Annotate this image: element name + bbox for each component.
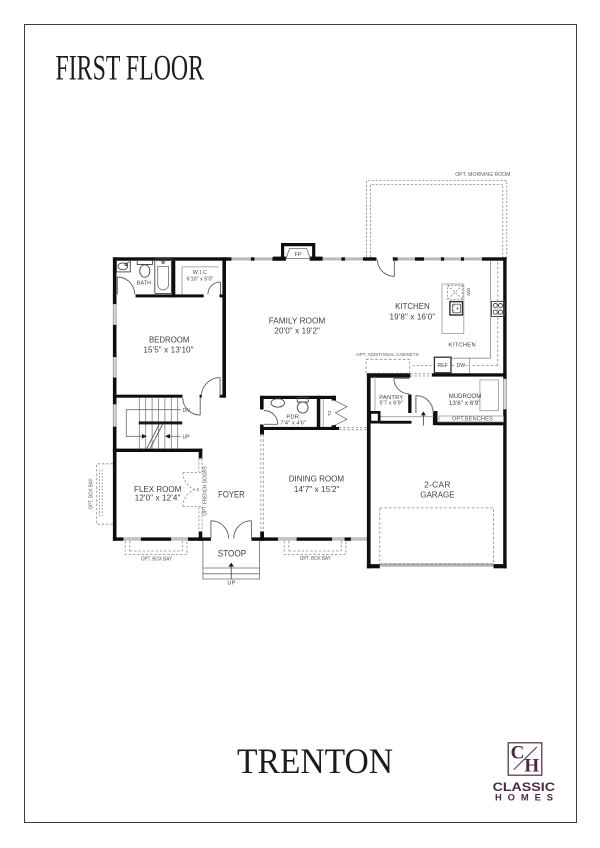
svg-text:5'7 x 6'9": 5'7 x 6'9"	[379, 401, 402, 407]
svg-text:FLEX ROOM: FLEX ROOM	[134, 484, 181, 494]
svg-text:7'4" x 4'6": 7'4" x 4'6"	[281, 421, 307, 427]
svg-text:KITCHEN: KITCHEN	[448, 343, 476, 349]
svg-text:KITCHEN: KITCHEN	[395, 301, 430, 311]
svg-text:15'5" x 13'10": 15'5" x 13'10"	[143, 345, 193, 354]
svg-text:OPT. MORNING ROOM: OPT. MORNING ROOM	[455, 172, 510, 178]
svg-text:14'7" x 15'2": 14'7" x 15'2"	[294, 485, 340, 494]
svg-text:2-CAR: 2-CAR	[424, 480, 451, 490]
svg-text:OPT. BOX BAY: OPT. BOX BAY	[300, 556, 331, 562]
svg-text:6'10" x 5'0": 6'10" x 5'0"	[187, 277, 214, 283]
svg-text:BATH: BATH	[137, 281, 151, 287]
svg-text:CL: CL	[327, 411, 332, 417]
svg-text:UP: UP	[183, 434, 191, 440]
svg-text:DINING ROOM: DINING ROOM	[289, 473, 344, 483]
svg-text:FOYER: FOYER	[218, 490, 245, 500]
svg-text:FP: FP	[295, 252, 302, 258]
svg-text:TRENTON: TRENTON	[237, 741, 393, 781]
svg-text:19'8" x 16'0": 19'8" x 16'0"	[390, 313, 436, 322]
svg-text:BEDROOM: BEDROOM	[149, 335, 190, 345]
svg-text:UP: UP	[227, 581, 235, 587]
svg-text:OPT. BOX BAY: OPT. BOX BAY	[88, 478, 94, 509]
svg-text:H: H	[524, 756, 539, 777]
svg-text:OPT. ADDITIONAL CABINETS: OPT. ADDITIONAL CABINETS	[356, 352, 419, 357]
svg-text:GARAGE: GARAGE	[420, 490, 455, 500]
svg-text:REF: REF	[438, 363, 448, 369]
svg-text:C: C	[511, 743, 525, 764]
svg-text:FAMILY ROOM: FAMILY ROOM	[269, 315, 326, 325]
svg-text:FIRST FLOOR: FIRST FLOOR	[56, 48, 205, 88]
svg-text:20'0" x 19'2": 20'0" x 19'2"	[274, 326, 320, 335]
svg-text:OPT. BOX BAY: OPT. BOX BAY	[141, 557, 172, 563]
svg-text:OPT.BENCHES: OPT.BENCHES	[452, 417, 493, 423]
svg-text:STOOP: STOOP	[218, 549, 247, 559]
svg-text:W.I.C: W.I.C	[193, 270, 207, 276]
svg-text:PDR.: PDR.	[286, 415, 301, 421]
svg-text:OPT. FRENCH DOORS: OPT. FRENCH DOORS	[202, 466, 208, 516]
svg-text:DW: DW	[466, 288, 471, 296]
svg-text:DN: DN	[183, 408, 191, 414]
svg-text:13'6" x 6'9": 13'6" x 6'9"	[449, 400, 481, 407]
svg-text:12'0" x 12'4": 12'0" x 12'4"	[135, 494, 181, 503]
svg-text:DW: DW	[457, 363, 466, 369]
